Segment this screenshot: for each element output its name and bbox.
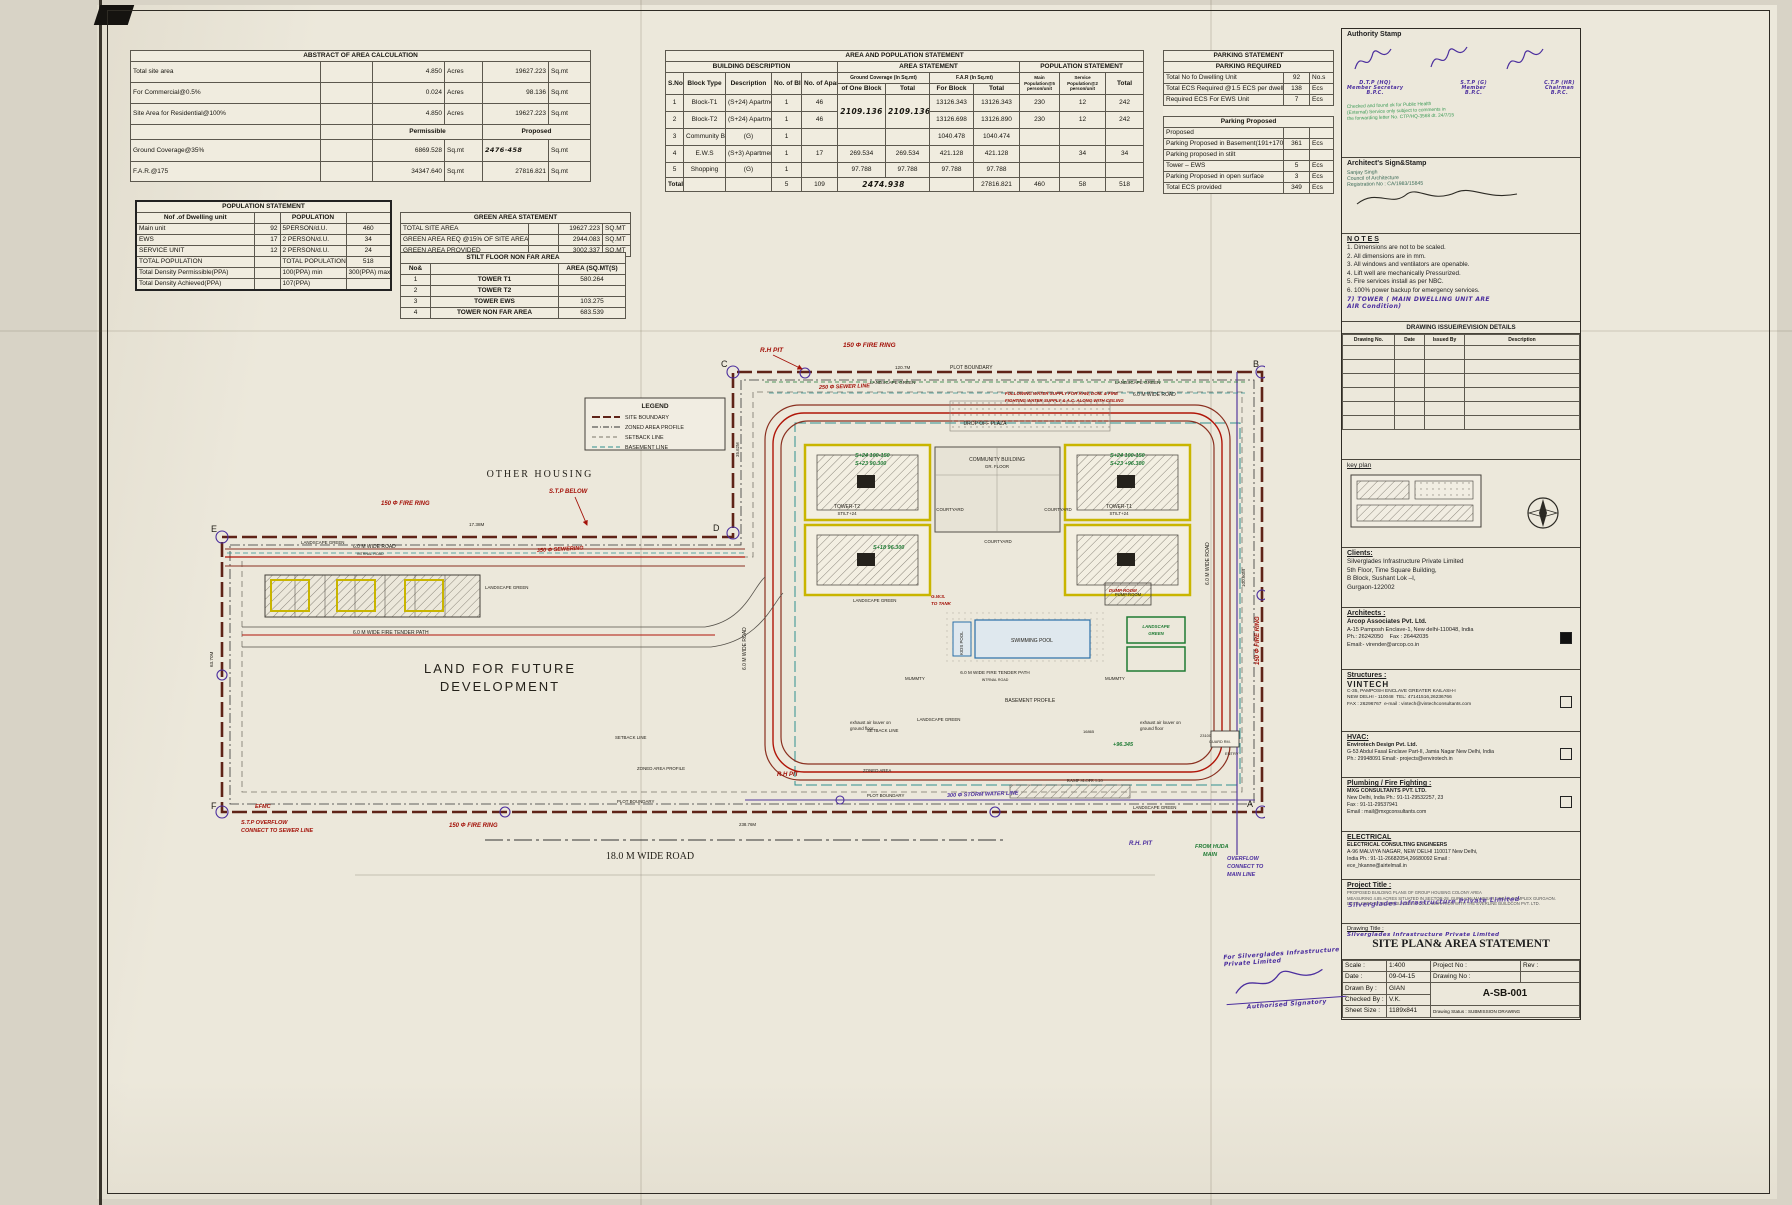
svg-text:exhaust air louver on: exhaust air louver on	[1140, 720, 1181, 725]
green-title: GREEN AREA STATEMENT	[401, 213, 631, 224]
svg-text:S+23 90.300: S+23 90.300	[855, 461, 886, 467]
svg-text:GUARD RM.: GUARD RM.	[1209, 740, 1231, 744]
authority-signatures	[1347, 39, 1573, 79]
parking-title: PARKING STATEMENT	[1164, 51, 1334, 62]
abstract-area-table: ABSTRACT OF AREA CALCULATION Total site …	[130, 50, 591, 182]
population-table: POPULATION STATEMENT Nof .of Dwelling un…	[135, 200, 392, 291]
svg-text:S+23 +96.300: S+23 +96.300	[1110, 461, 1145, 467]
svg-text:150 Φ FIRE RING: 150 Φ FIRE RING	[381, 501, 430, 507]
svg-text:CONNECT TO SEWER LINE: CONNECT TO SEWER LINE	[241, 828, 313, 834]
population-title: POPULATION STATEMENT	[136, 201, 391, 213]
architects-section: Architects : Arcop Associates Pvt. Ltd. …	[1342, 607, 1580, 669]
svg-text:LANDSCAPE GREEN: LANDSCAPE GREEN	[870, 380, 915, 385]
svg-text:OVERFLOW: OVERFLOW	[1227, 856, 1260, 862]
svg-text:LANDSCAPE: LANDSCAPE	[1142, 624, 1170, 629]
svg-text:EFMC: EFMC	[255, 804, 272, 810]
svg-text:ground floor: ground floor	[1140, 726, 1164, 731]
plumbing-title: Plumbing / Fire Fighting :	[1347, 780, 1575, 787]
scanned-site-plan-sheet: { "abstract":{"title":"ABSTRACT OF AREA …	[0, 0, 1792, 1205]
key-plan-section: key plan	[1342, 459, 1580, 547]
svg-text:STILT+24: STILT+24	[1109, 511, 1129, 516]
svg-text:FROM HUDA: FROM HUDA	[1195, 844, 1229, 850]
svg-text:FOLLOWING WATER SUPPLY FOR RAW: FOLLOWING WATER SUPPLY FOR RAW, DOM. & F…	[1005, 391, 1119, 396]
hvac-title: HVAC:	[1347, 734, 1575, 741]
svg-text:D: D	[713, 523, 720, 533]
authority-stamp-label: Authority Stamp	[1347, 31, 1575, 38]
plumbing-section: Plumbing / Fire Fighting : MXG CONSULTAN…	[1342, 777, 1580, 831]
svg-text:S+24 100-150: S+24 100-150	[1110, 453, 1145, 459]
plumbing-marker-square	[1560, 796, 1572, 808]
clients-section: Clients: Silverglades Infrastructure Pri…	[1342, 547, 1580, 607]
svg-text:6.0 M WIDE ROAD: 6.0 M WIDE ROAD	[1205, 542, 1211, 585]
hvac-section: HVAC: Envirotech Design Pvt. Ltd. G-53 A…	[1342, 731, 1580, 777]
svg-text:BASEMENT LINE: BASEMENT LINE	[625, 445, 668, 451]
svg-text:150 Φ FIRE RING: 150 Φ FIRE RING	[1255, 616, 1261, 665]
svg-text:S+24 100-150: S+24 100-150	[855, 453, 890, 459]
svg-text:35.62M: 35.62M	[735, 442, 740, 457]
notes-title: N O T E S	[1347, 236, 1575, 243]
svg-text:LANDSCAPE GREEN: LANDSCAPE GREEN	[1115, 380, 1160, 385]
svg-text:COMMUNITY BUILDING: COMMUNITY BUILDING	[969, 457, 1025, 463]
road-18m	[355, 840, 1155, 875]
electrical-title: ELECTRICAL	[1347, 834, 1575, 841]
svg-text:C: C	[721, 359, 728, 369]
authority-stamp-section: Authority Stamp D.T.P (HQ)Member Secreta…	[1342, 29, 1580, 157]
svg-text:FIGHTING WATER SUPPLY & A.C. A: FIGHTING WATER SUPPLY & A.C. ALONG WITH …	[1005, 398, 1124, 403]
svg-text:G.W.S.: G.W.S.	[931, 594, 945, 599]
svg-text:150 Φ FIRE RING: 150 Φ FIRE RING	[843, 342, 896, 349]
svg-text:R.H PIT: R.H PIT	[760, 347, 784, 354]
svg-text:STILT+24: STILT+24	[837, 511, 857, 516]
svg-text:6.0 M WIDE FIRE TENDER PATH: 6.0 M WIDE FIRE TENDER PATH	[960, 670, 1029, 675]
drawing-title-section: Drawing Title : Silverglades Infrastruct…	[1342, 923, 1580, 959]
svg-text:6.0 M WIDE ROAD: 6.0 M WIDE ROAD	[1133, 392, 1176, 398]
svg-text:120.7M: 120.7M	[895, 365, 910, 370]
svg-text:S.T.P BELOW: S.T.P BELOW	[549, 489, 589, 495]
svg-text:6.0 M WIDE ROAD: 6.0 M WIDE ROAD	[353, 544, 396, 550]
svg-text:6.0 M WIDE FIRE TENDER PATH: 6.0 M WIDE FIRE TENDER PATH	[353, 630, 429, 636]
svg-text:+96.345: +96.345	[1113, 742, 1134, 748]
title-block: Authority Stamp D.T.P (HQ)Member Secreta…	[1341, 28, 1581, 1020]
svg-text:PLOT BOUNDARY: PLOT BOUNDARY	[950, 365, 993, 371]
ramp	[1010, 785, 1130, 798]
svg-text:16865: 16865	[1083, 729, 1095, 734]
svg-text:LANDSCAPE GREEN: LANDSCAPE GREEN	[1133, 805, 1176, 810]
svg-text:PLOT BOUNDARY: PLOT BOUNDARY	[617, 799, 654, 804]
abstract-title: ABSTRACT OF AREA CALCULATION	[131, 51, 591, 62]
project-title-label: Project Title :	[1347, 882, 1575, 889]
svg-text:SWIMMING POOL: SWIMMING POOL	[1011, 638, 1053, 644]
svg-text:SETBACK LINE: SETBACK LINE	[615, 735, 647, 740]
svg-text:238.76M: 238.76M	[739, 822, 756, 827]
key-plan-diagram	[1347, 469, 1573, 535]
svg-text:ENTRY: ENTRY	[1225, 751, 1239, 756]
svg-text:R.H. PIT: R.H. PIT	[1129, 841, 1153, 847]
svg-text:INTRNAL ROAD: INTRNAL ROAD	[982, 678, 1009, 682]
svg-text:ZONED AREA PROFILE: ZONED AREA PROFILE	[625, 425, 684, 431]
stilt-title: STILT FLOOR NON FAR AREA	[401, 253, 626, 264]
svg-text:ZONED AREA: ZONED AREA	[863, 768, 891, 773]
stilt-floor-table: STILT FLOOR NON FAR AREA No&AREA (SQ.MT(…	[400, 252, 626, 319]
architects-marker-square	[1560, 632, 1572, 644]
ap-title: AREA AND POPULATION STATEMENT	[666, 51, 1144, 62]
svg-text:MUMMTY: MUMMTY	[1105, 676, 1125, 681]
notes-section: N O T E S 1. Dimensions are not to be sc…	[1342, 233, 1580, 321]
svg-text:COURTYARD: COURTYARD	[936, 507, 963, 512]
svg-text:350 Φ SEWERING: 350 Φ SEWERING	[537, 546, 585, 554]
svg-text:63.70M: 63.70M	[209, 652, 214, 667]
architects-title: Architects :	[1347, 610, 1575, 617]
svg-text:INTRNAL ROAD: INTRNAL ROAD	[357, 552, 384, 556]
svg-text:LANDSCAPE GREEN: LANDSCAPE GREEN	[917, 717, 960, 722]
area-population-table: AREA AND POPULATION STATEMENT BUILDING D…	[665, 50, 1144, 192]
north-compass-icon	[1528, 498, 1558, 528]
svg-text:LANDSCAPE GREEN: LANDSCAPE GREEN	[853, 598, 896, 603]
svg-text:SETBACK LINE: SETBACK LINE	[625, 435, 664, 441]
svg-text:COURTYARD: COURTYARD	[1044, 507, 1071, 512]
architect-signature	[1347, 186, 1547, 210]
info-block: Scale :1:400Project No :Rev : Date :09-0…	[1342, 959, 1580, 1019]
info-table: Scale :1:400Project No :Rev : Date :09-0…	[1342, 960, 1580, 1018]
svg-text:DEVELOPMENT: DEVELOPMENT	[440, 679, 560, 694]
legend-title: LEGEND	[641, 403, 668, 410]
svg-text:MAIN: MAIN	[1203, 852, 1218, 858]
parking-table: PARKING STATEMENT PARKING REQUIRED Total…	[1163, 50, 1334, 194]
svg-text:E: E	[211, 524, 217, 534]
vintech-logo: VINTECH	[1347, 680, 1575, 689]
health-approval-stamp: Checked and found ok for Public Health(E…	[1347, 97, 1576, 124]
svg-text:150 Φ FIRE RING: 150 Φ FIRE RING	[449, 823, 498, 829]
svg-text:COURTYARD: COURTYARD	[984, 539, 1011, 544]
key-plan-label: key plan	[1347, 462, 1575, 469]
svg-text:DROP OFF PLAZA: DROP OFF PLAZA	[964, 421, 1008, 427]
green-area-table: GREEN AREA STATEMENT TOTAL SITE AREA1962…	[400, 212, 631, 257]
svg-text:300 Φ STORM WATER LINE: 300 Φ STORM WATER LINE	[947, 790, 1019, 799]
svg-text:23100: 23100	[1200, 733, 1212, 738]
electrical-section: ELECTRICAL ELECTRICAL CONSULTING ENGINEE…	[1342, 831, 1580, 879]
svg-text:GREEN: GREEN	[1148, 631, 1164, 636]
svg-text:KIDS POOL: KIDS POOL	[959, 631, 964, 655]
drawing-title: SITE PLAN& AREA STATEMENT	[1347, 938, 1575, 950]
svg-text:RAMP SLOPE 1:20: RAMP SLOPE 1:20	[1067, 778, 1104, 783]
structures-marker-square	[1560, 696, 1572, 708]
svg-text:CONNECT TO: CONNECT TO	[1227, 864, 1264, 870]
svg-text:LANDSCAPE GREEN: LANDSCAPE GREEN	[485, 585, 528, 590]
svg-text:exhaust air louver on: exhaust air louver on	[850, 720, 891, 725]
svg-text:R.H PIT: R.H PIT	[777, 772, 800, 778]
svg-text:TOWER-T2: TOWER-T2	[834, 504, 860, 510]
svg-text:100.60M: 100.60M	[1241, 569, 1246, 587]
tower-t2-lower	[805, 525, 930, 595]
svg-text:TOWER-T1: TOWER-T1	[1106, 504, 1132, 510]
scan-edge-line	[99, 0, 102, 1205]
authorisation-signature	[1224, 961, 1336, 1003]
legend-box: LEGEND SITE BOUNDARY ZONED AREA PROFILE …	[585, 398, 725, 451]
svg-text:S.T.P OVERFLOW: S.T.P OVERFLOW	[241, 820, 288, 826]
structures-section: Structures : VINTECH C-35, PAMPOSH ENCLA…	[1342, 669, 1580, 731]
authorisation-stamp: For Silverglades Infrastructure Private …	[1223, 946, 1347, 1012]
ews-building	[265, 575, 480, 617]
land-future-label: LAND FOR FUTURE	[424, 661, 576, 676]
revision-title: DRAWING ISSUE/REVISION DETAILS	[1342, 322, 1580, 334]
svg-text:250 Φ SEWER LINE: 250 Φ SEWER LINE	[818, 383, 870, 391]
svg-text:LANDSCAPE GREEN: LANDSCAPE GREEN	[301, 540, 344, 545]
svg-text:SITE BOUNDARY: SITE BOUNDARY	[625, 415, 669, 421]
svg-text:17.38M: 17.38M	[469, 522, 484, 527]
revision-table: Drawing No.DateIssued ByDescription	[1342, 334, 1580, 430]
site-plan-drawing: LEGEND SITE BOUNDARY ZONED AREA PROFILE …	[105, 335, 1265, 883]
svg-text:ZONED AREA PROFILE: ZONED AREA PROFILE	[637, 766, 685, 771]
structures-title: Structures :	[1347, 672, 1575, 679]
svg-text:A: A	[1247, 799, 1253, 809]
guard-room	[1211, 731, 1239, 747]
svg-text:MAIN LINE: MAIN LINE	[1227, 872, 1255, 878]
svg-text:PLOT BOUNDARY: PLOT BOUNDARY	[867, 793, 904, 798]
other-housing-label: OTHER HOUSING	[487, 469, 594, 480]
svg-text:MUMMTY: MUMMTY	[905, 676, 925, 681]
project-title-section: Project Title : PROPOSED BUILDING PLANS …	[1342, 879, 1580, 923]
svg-text:BASEMENT PROFILE: BASEMENT PROFILE	[1005, 698, 1056, 704]
revision-section: DRAWING ISSUE/REVISION DETAILS Drawing N…	[1342, 321, 1580, 459]
hvac-marker-square	[1560, 748, 1572, 760]
svg-text:F: F	[211, 801, 217, 811]
svg-text:GR. FLOOR: GR. FLOOR	[985, 464, 1009, 469]
svg-text:SETBACK LINE: SETBACK LINE	[867, 728, 899, 733]
clients-title: Clients:	[1347, 550, 1575, 557]
svg-text:DUMP ROOM: DUMP ROOM	[1109, 588, 1137, 593]
svg-text:B: B	[1253, 359, 1259, 369]
road-18m-label: 18.0 M WIDE ROAD	[606, 851, 694, 862]
architect-stamp-section: Architect's Sign&Stamp Sanjay SinghCounc…	[1342, 157, 1580, 233]
drawing-number: A-SB-001	[1431, 983, 1580, 1005]
svg-text:S+18 96.300: S+18 96.300	[873, 545, 904, 551]
svg-text:TO TANK: TO TANK	[931, 601, 952, 606]
svg-text:6.0 M WIDE ROAD: 6.0 M WIDE ROAD	[742, 627, 748, 670]
